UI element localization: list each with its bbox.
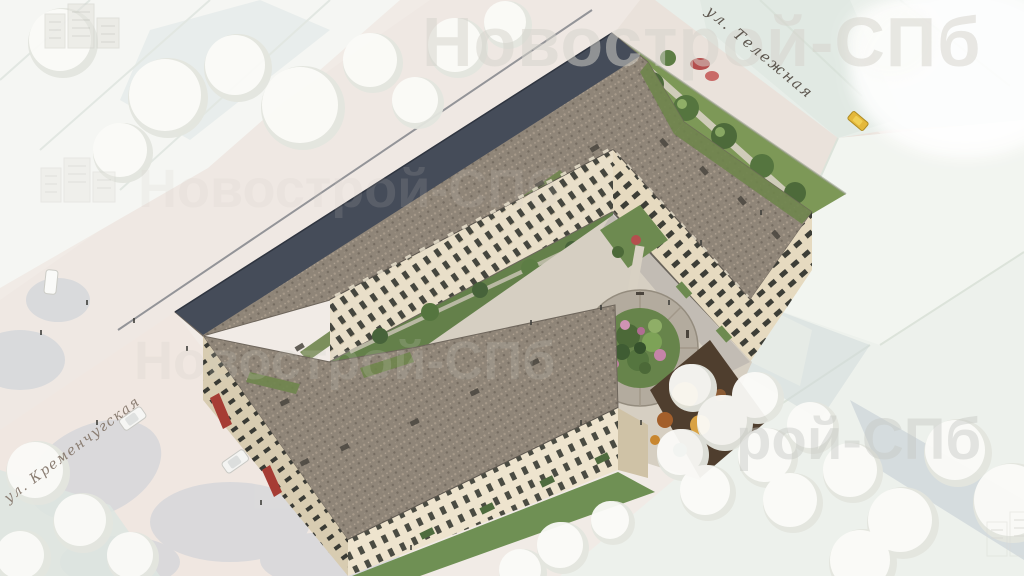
- aerial-render-canvas: Новострой-СПб Новострой-СПб Новострой-СП…: [0, 0, 1024, 576]
- white-car-3: [44, 269, 58, 294]
- render-scene: [0, 0, 1024, 576]
